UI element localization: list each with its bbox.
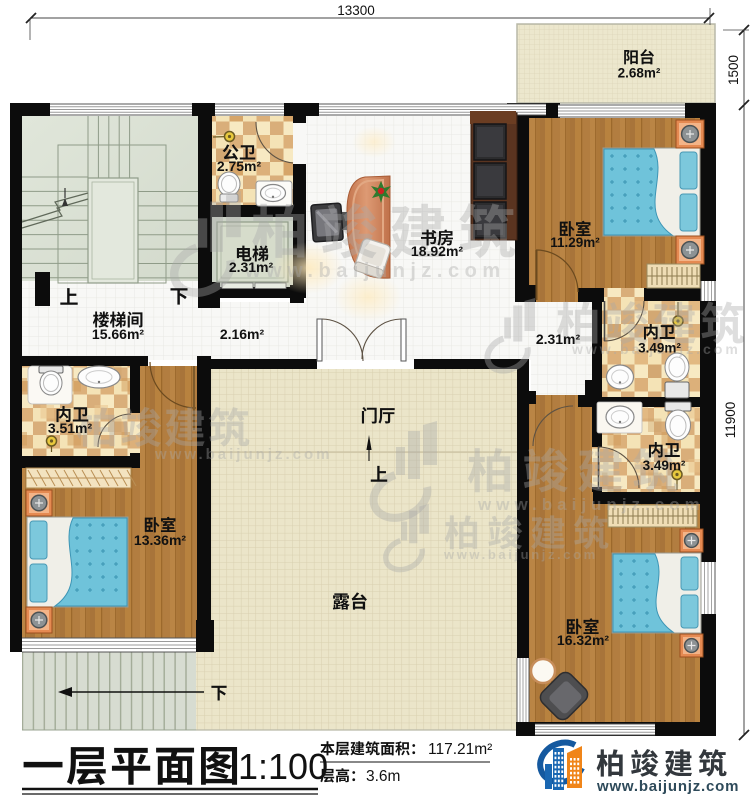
svg-text:2.16m²: 2.16m² <box>220 326 265 342</box>
svg-text:www.baijunjz.com: www.baijunjz.com <box>244 260 506 282</box>
svg-text:2.31m²: 2.31m² <box>229 259 274 275</box>
svg-text:3.49m²: 3.49m² <box>638 341 681 356</box>
svg-text:13300: 13300 <box>337 3 375 18</box>
svg-text:www.baijunjz.com: www.baijunjz.com <box>443 547 598 562</box>
svg-text:www.baijunjz.com: www.baijunjz.com <box>596 778 739 795</box>
svg-text:16.32m²: 16.32m² <box>557 632 609 648</box>
svg-text:2.75m²: 2.75m² <box>217 158 262 174</box>
svg-text:2.68m²: 2.68m² <box>618 66 661 81</box>
svg-text:18.92m²: 18.92m² <box>411 243 463 259</box>
svg-text:15.66m²: 15.66m² <box>92 326 144 342</box>
svg-text:11900: 11900 <box>723 402 738 439</box>
svg-text:3.6m: 3.6m <box>366 768 400 785</box>
svg-text:3.49m²: 3.49m² <box>643 458 686 473</box>
svg-text:2.31m²: 2.31m² <box>536 331 581 347</box>
svg-text:www.baijunjz.com: www.baijunjz.com <box>477 495 705 514</box>
svg-text:1500: 1500 <box>726 55 741 85</box>
svg-text:11.29m²: 11.29m² <box>550 235 600 250</box>
svg-text:1:100: 1:100 <box>238 746 328 787</box>
svg-text:117.21m²: 117.21m² <box>428 741 492 758</box>
svg-text:3.51m²: 3.51m² <box>48 420 93 436</box>
svg-text:13.36m²: 13.36m² <box>134 532 186 548</box>
svg-text:www.baijunjz.com: www.baijunjz.com <box>154 446 332 463</box>
